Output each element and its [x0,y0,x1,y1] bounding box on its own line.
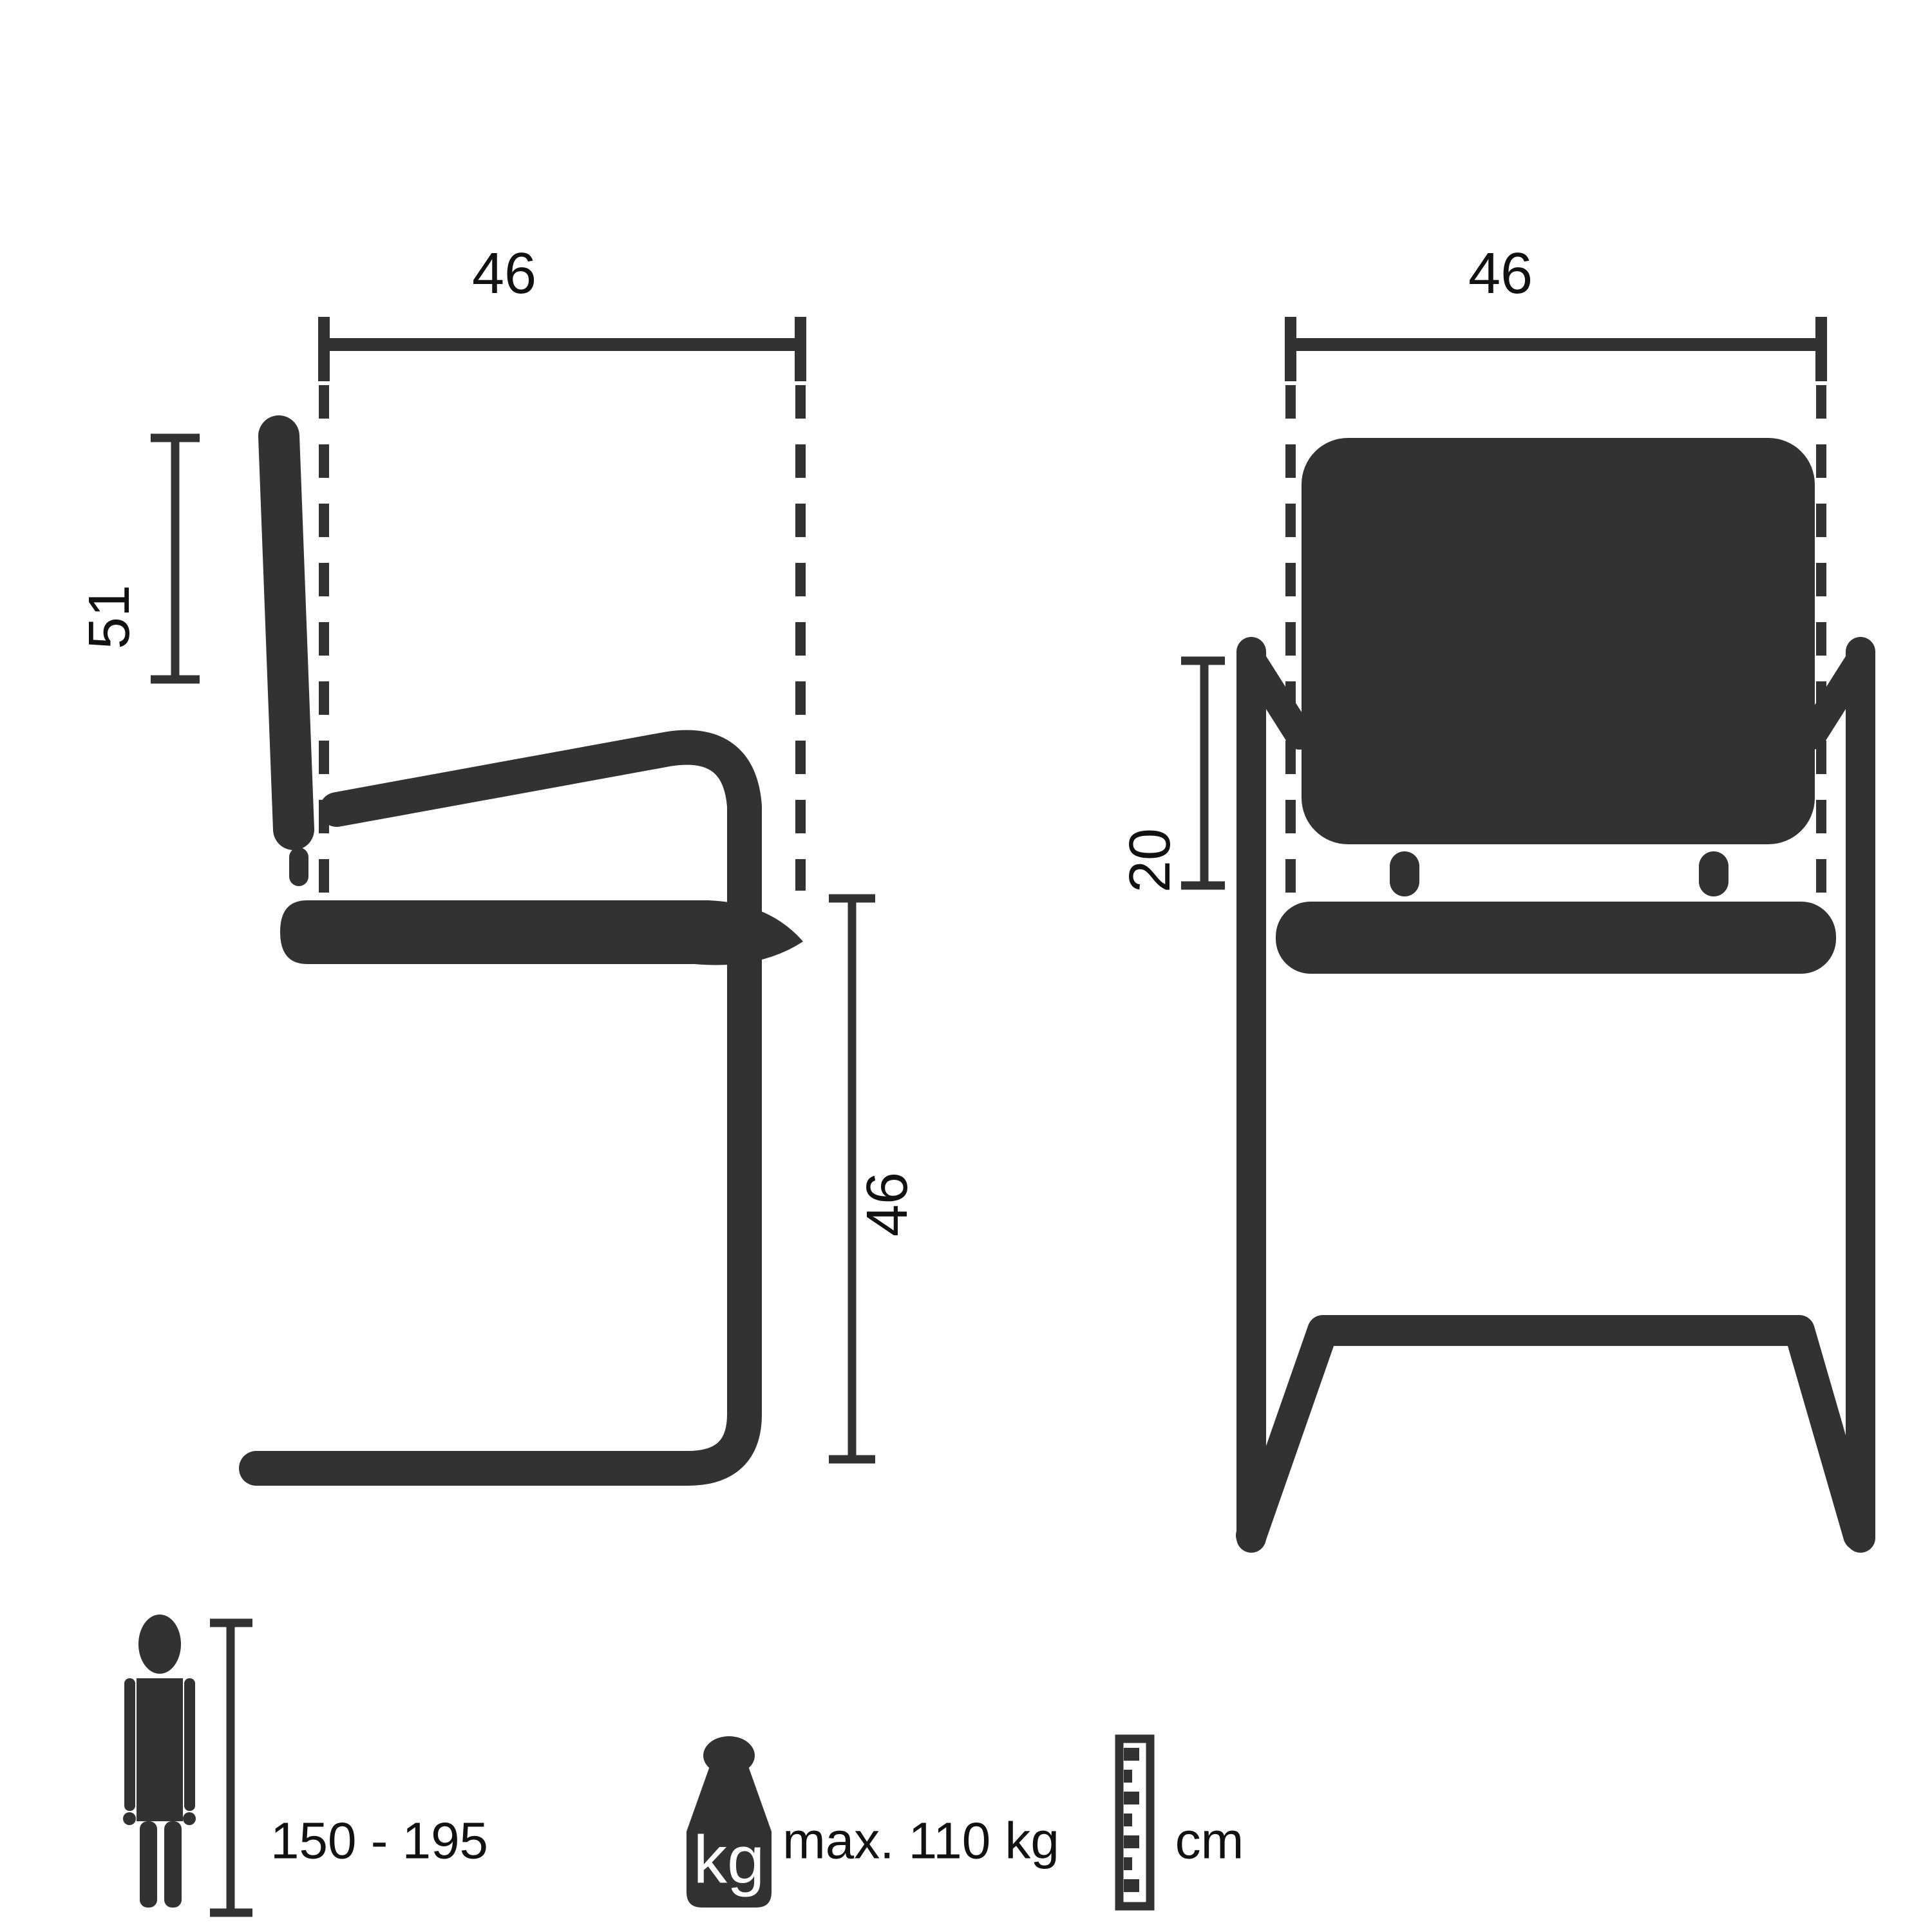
backrest-front [1302,438,1815,844]
dimension-label-front-width: 46 [1468,241,1533,306]
person-hand-right [183,1812,196,1825]
weight-kg-label: kg [694,1823,765,1898]
person-torso [137,1678,183,1821]
person-height-range-label: 150 - 195 [270,1812,488,1870]
ruler-tick [1124,1857,1132,1870]
ruler-tick [1124,1748,1139,1761]
ruler-tick [1124,1835,1139,1848]
ruler-icon [1119,1739,1150,1906]
unit-label: cm [1175,1812,1244,1870]
dimension-label-backrest-height: 51 [77,585,142,649]
ruler-tick [1124,1792,1139,1804]
person-hand-left [123,1812,136,1825]
seat-side [280,900,803,965]
ruler-tick [1124,1770,1132,1783]
backrest-clip-side [289,848,308,886]
dimension-label-seat-height: 46 [855,1172,920,1236]
backrest-clip-left [1390,851,1419,896]
backrest-side [279,436,294,829]
dimension-label-side-width: 46 [472,241,536,306]
person-head [138,1615,181,1674]
backrest-clip-right [1699,851,1728,896]
person-leg-left [140,1821,157,1908]
person-arm-right [184,1678,195,1811]
ruler-tick [1124,1879,1139,1892]
seat-front [1276,902,1836,974]
ruler-tick [1124,1814,1132,1826]
chair-dimension-diagram: 46 51 46 46 [0,0,1932,1932]
max-weight-label: max. 110 kg [782,1812,1059,1870]
person-leg-right [164,1821,182,1908]
dimension-label-armrest-to-seat: 20 [1118,828,1182,893]
person-arm-left [124,1678,135,1811]
